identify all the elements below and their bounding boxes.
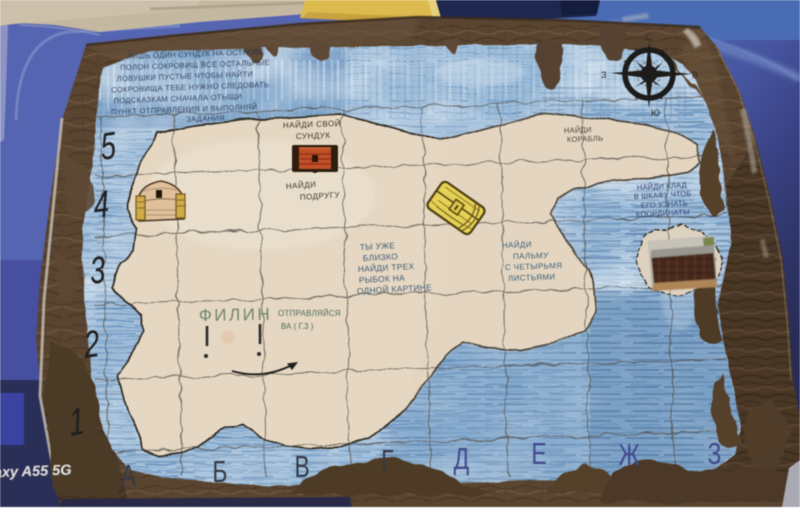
svg-text:4: 4: [93, 183, 110, 227]
svg-text:ОТПРАВЛЯЙСЯ: ОТПРАВЛЯЙСЯ: [278, 309, 341, 318]
svg-text:ФИЛИН: ФИЛИН: [199, 305, 273, 325]
svg-text:НАЙДИ: НАЙДИ: [502, 240, 532, 250]
svg-text:З: З: [707, 436, 721, 471]
svg-text:А: А: [121, 458, 137, 493]
svg-text:В: В: [295, 449, 310, 484]
svg-text:Ю: Ю: [651, 108, 660, 118]
svg-text:аxy A55 5G: аxy A55 5G: [0, 463, 72, 482]
svg-text:Г: Г: [381, 443, 394, 478]
svg-text:Ж: Ж: [619, 437, 640, 472]
svg-text:Д: Д: [454, 441, 470, 476]
svg-text:С: С: [645, 32, 652, 42]
svg-text:ПАЛЬМУ: ПАЛЬМУ: [513, 251, 550, 261]
svg-text:ЛИСТЬЯМИ: ЛИСТЬЯМИ: [508, 272, 556, 283]
svg-text:ВА ( Г.3 ): ВА ( Г.3 ): [281, 322, 314, 331]
svg-text:КОРАБЛЬ: КОРАБЛЬ: [567, 134, 604, 144]
svg-text:Б: Б: [212, 454, 227, 489]
svg-text:В: В: [692, 70, 698, 80]
svg-text:Е: Е: [531, 436, 546, 471]
svg-text:ЗАДАНИЯ: ЗАДАНИЯ: [186, 114, 225, 124]
svg-text:3: 3: [89, 249, 107, 293]
svg-text:2: 2: [82, 323, 101, 368]
svg-text:З: З: [601, 70, 606, 80]
svg-text:СУНДУК: СУНДУК: [296, 131, 331, 141]
svg-text:ТЫ УЖЕ: ТЫ УЖЕ: [360, 240, 396, 252]
